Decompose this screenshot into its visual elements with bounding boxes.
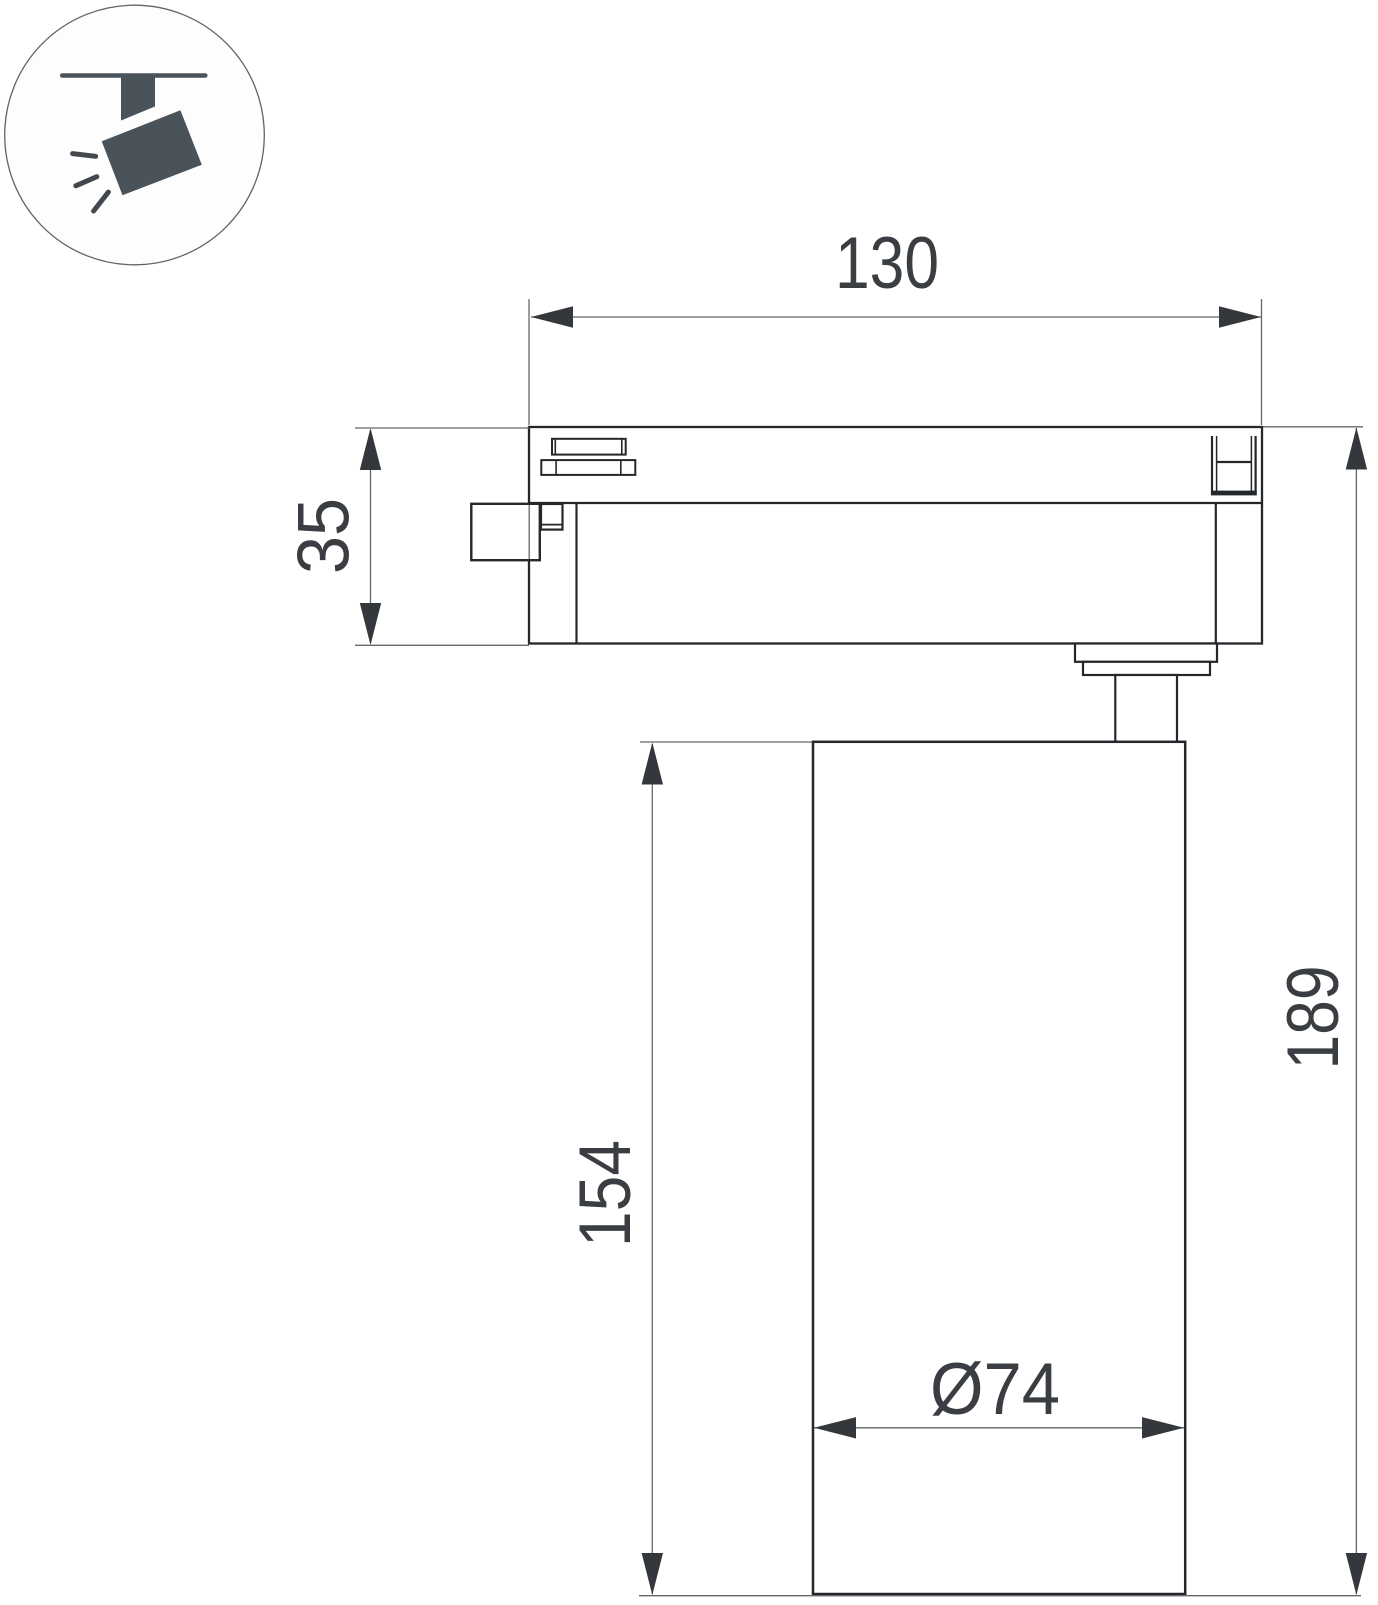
svg-text:189: 189 bbox=[1271, 966, 1354, 1070]
svg-text:Ø74: Ø74 bbox=[930, 1347, 1060, 1430]
svg-text:154: 154 bbox=[563, 1140, 646, 1247]
svg-text:130: 130 bbox=[835, 221, 939, 304]
svg-text:35: 35 bbox=[282, 498, 365, 574]
